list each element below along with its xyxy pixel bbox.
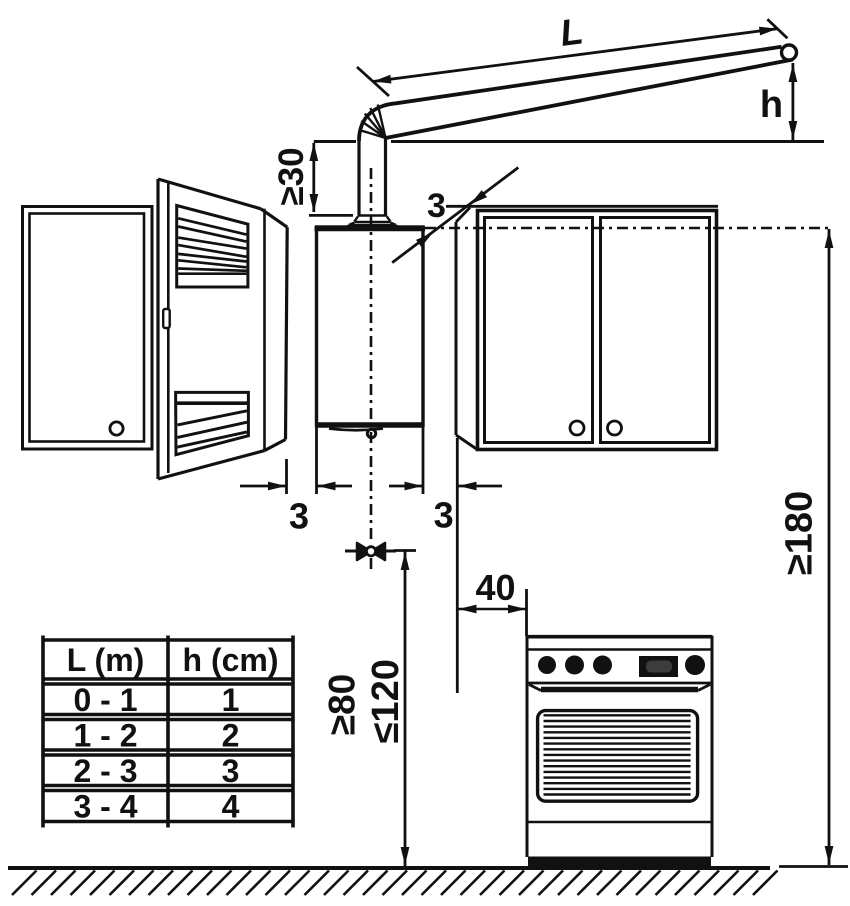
svg-text:3: 3: [222, 753, 240, 789]
svg-text:h (cm): h (cm): [183, 642, 279, 678]
svg-text:1: 1: [222, 682, 240, 718]
svg-text:0 - 1: 0 - 1: [73, 682, 137, 718]
svg-text:1 - 2: 1 - 2: [73, 717, 137, 753]
svg-text:L (m): L (m): [67, 642, 145, 678]
svg-text:3: 3: [434, 495, 454, 536]
svg-text:40: 40: [475, 567, 515, 608]
svg-text:4: 4: [222, 789, 240, 825]
svg-text:≥30: ≥30: [272, 147, 311, 205]
svg-text:3 - 4: 3 - 4: [73, 789, 137, 825]
svg-text:2 - 3: 2 - 3: [73, 753, 137, 789]
svg-text:2: 2: [222, 717, 240, 753]
svg-text:3: 3: [427, 187, 446, 225]
svg-text:≤120: ≤120: [365, 659, 407, 743]
svg-text:≥80: ≥80: [322, 674, 363, 735]
svg-text:3: 3: [289, 496, 309, 537]
svg-text:h: h: [760, 84, 783, 126]
svg-text:≥180: ≥180: [778, 491, 820, 575]
